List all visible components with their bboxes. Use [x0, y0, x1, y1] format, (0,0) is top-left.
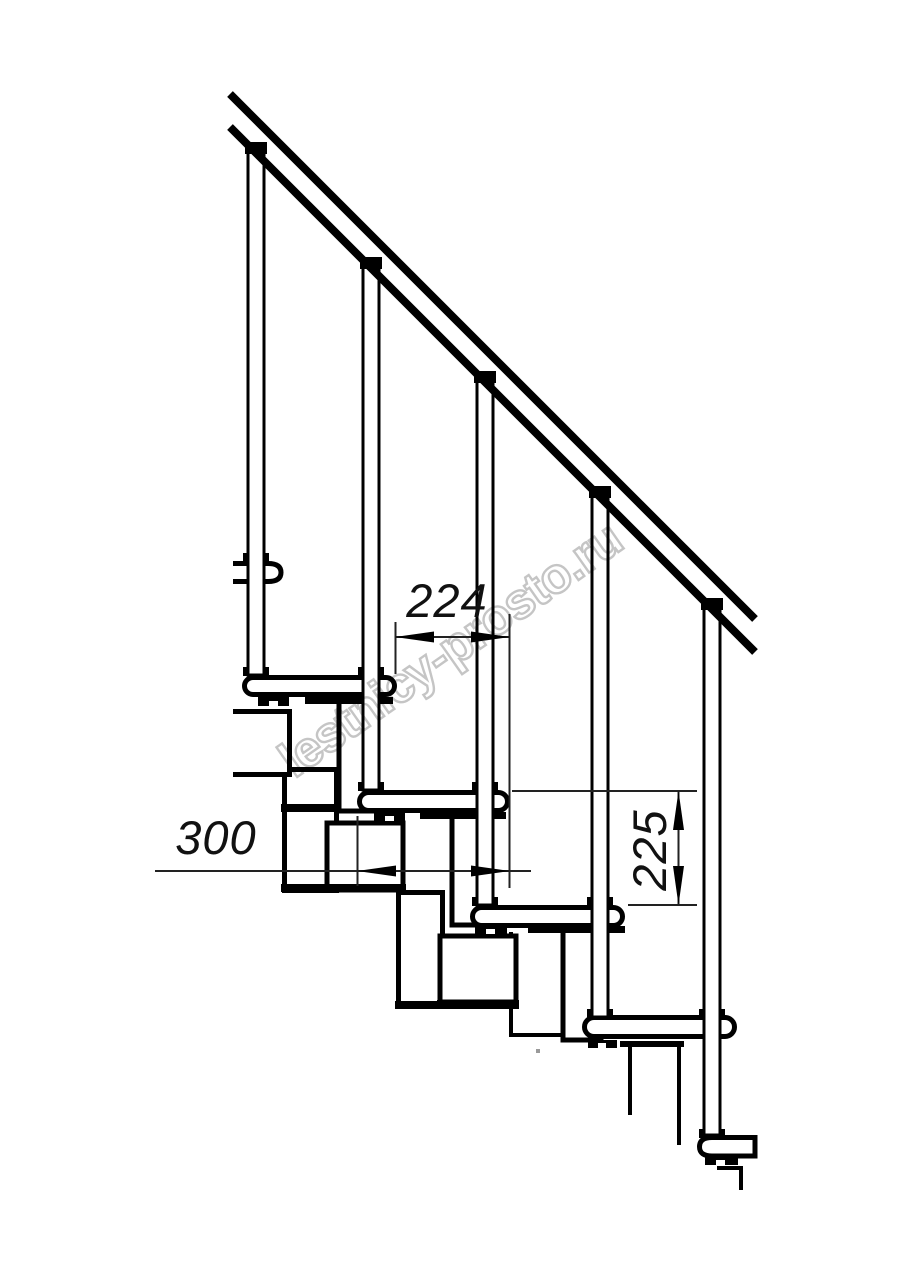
baluster-1	[248, 151, 264, 675]
module-cut-step-line	[717, 1168, 741, 1190]
module-flange-bar	[324, 884, 406, 892]
baluster-5	[704, 607, 720, 1135]
step-module-5	[705, 1156, 741, 1190]
dimension-value: 225	[623, 809, 676, 891]
module-box-lower	[399, 893, 443, 1006]
tread-6-partial	[700, 1138, 756, 1157]
watermark-text: lestnicy-prosto.ru	[269, 510, 632, 788]
module-box-upper	[327, 823, 403, 890]
module-flange-bar	[437, 1000, 519, 1009]
module-box-upper	[440, 936, 516, 1002]
weld-speck	[536, 1049, 540, 1053]
technical-drawing-page: 224 300 225 lestnicy-prosto.ru	[0, 0, 914, 1280]
tread-bracket-notch	[385, 816, 394, 821]
module-flange-bar	[281, 804, 340, 812]
tread-mount-strip	[620, 1041, 684, 1047]
tread-bracket-notch	[598, 1043, 606, 1048]
step-module-4	[588, 1040, 684, 1145]
tread-bracket-notch	[716, 1160, 725, 1165]
staircase-drawing: 224 300 225 lestnicy-prosto.ru	[0, 0, 914, 1280]
tread-bracket-notch	[269, 701, 278, 706]
dimension-value: 300	[175, 811, 256, 864]
tread-bracket-notch	[486, 929, 495, 934]
module-box-lower	[511, 932, 563, 1035]
